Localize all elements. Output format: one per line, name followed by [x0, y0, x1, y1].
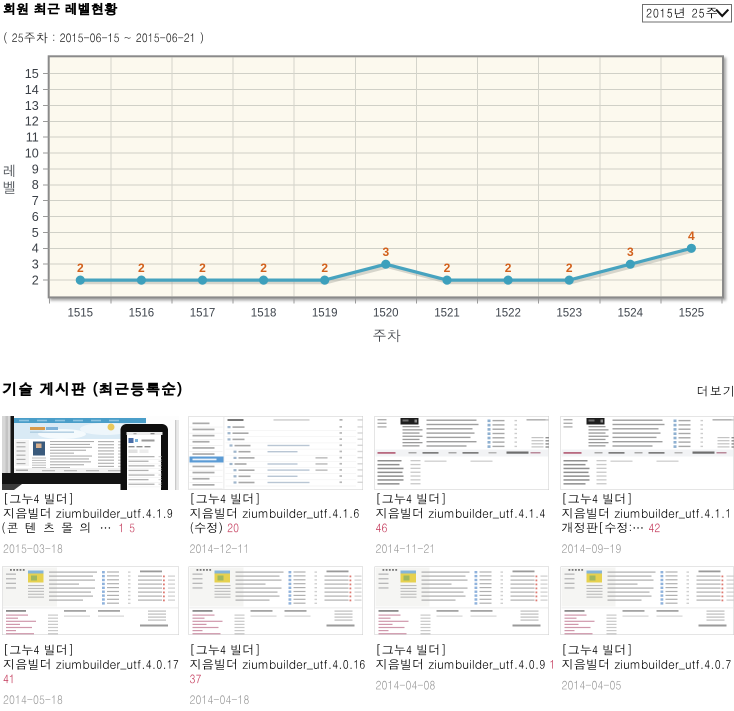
svg-text:3: 3 [32, 258, 39, 272]
svg-text:1520: 1520 [373, 307, 399, 319]
svg-text:10: 10 [25, 147, 39, 161]
svg-text:2: 2 [77, 261, 84, 275]
svg-text:5: 5 [32, 226, 39, 240]
svg-text:4: 4 [688, 229, 695, 243]
svg-text:1523: 1523 [556, 307, 582, 319]
svg-text:1517: 1517 [190, 307, 216, 319]
svg-text:2: 2 [505, 261, 512, 275]
svg-text:1521: 1521 [434, 307, 460, 319]
svg-text:1515: 1515 [68, 307, 94, 319]
svg-text:2: 2 [321, 261, 328, 275]
svg-text:4: 4 [32, 242, 39, 256]
svg-text:14: 14 [25, 83, 39, 97]
svg-text:2: 2 [444, 261, 451, 275]
svg-text:1525: 1525 [679, 307, 705, 319]
svg-text:7: 7 [32, 194, 39, 208]
svg-text:1522: 1522 [495, 307, 521, 319]
svg-text:13: 13 [25, 99, 39, 113]
svg-text:1516: 1516 [129, 307, 155, 319]
svg-text:8: 8 [32, 178, 39, 192]
svg-text:2: 2 [32, 274, 39, 288]
svg-text:2: 2 [260, 261, 267, 275]
svg-text:12: 12 [25, 115, 39, 129]
svg-text:3: 3 [382, 245, 389, 259]
svg-text:2: 2 [199, 261, 206, 275]
svg-text:1518: 1518 [251, 307, 277, 319]
svg-text:2: 2 [138, 261, 145, 275]
svg-text:11: 11 [26, 131, 39, 145]
svg-text:15: 15 [25, 67, 39, 81]
svg-text:2: 2 [566, 261, 573, 275]
svg-text:1524: 1524 [618, 307, 644, 319]
svg-text:1519: 1519 [312, 307, 338, 319]
svg-text:3: 3 [627, 245, 634, 259]
svg-text:6: 6 [32, 210, 39, 224]
svg-text:9: 9 [32, 162, 39, 176]
